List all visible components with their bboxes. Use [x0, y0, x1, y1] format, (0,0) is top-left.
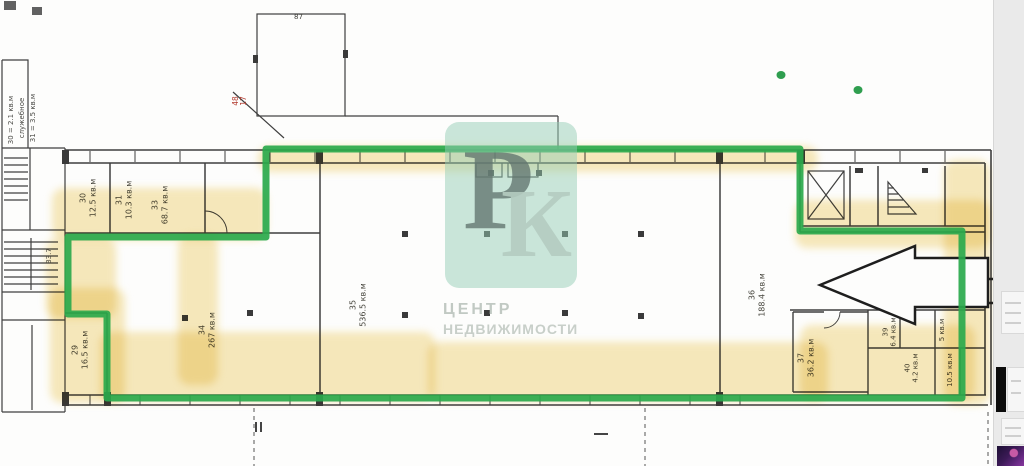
room-label-39: 396.4 кв.м [882, 317, 899, 346]
highlight-blob [944, 160, 990, 405]
room-label-small-1: 5 кв.м [938, 319, 946, 342]
highlight-blob [50, 288, 125, 403]
green-dot [854, 86, 863, 94]
room-label-29: 2916.5 кв.м [70, 331, 89, 369]
stairs-lines [4, 158, 58, 290]
sidebar-photo-thumbnail[interactable] [997, 446, 1024, 466]
room-label-30: 3012.5 кв.м [78, 179, 97, 217]
annex-note: 87 [294, 13, 303, 21]
highlight-blob [178, 235, 218, 385]
room-label-34: 34267 кв.м [197, 312, 216, 348]
highlight-blob [800, 325, 975, 400]
highlight-blob [100, 332, 435, 402]
sidebar-thumbnail-3[interactable] [1001, 418, 1024, 445]
margin-note-3: 31 = 3.5 кв.м [29, 94, 37, 142]
margin-note-2: служебное [18, 98, 26, 139]
highlight-blob [52, 188, 267, 240]
highlight-blob [46, 238, 116, 318]
highlight-blob [428, 342, 828, 402]
gallery-sidebar [993, 0, 1024, 466]
sidebar-black-bar [996, 367, 1006, 412]
room-label-35: 35536.5 кв.м [348, 283, 367, 327]
room-label-36: 36188.4 кв.м [747, 273, 766, 317]
floor-plan-screenshot: 2916.5 кв.м 3012.5 кв.м 3110.3 кв.м 3368… [0, 0, 1024, 466]
highlight-blob [795, 200, 990, 248]
watermark-letter-k: К [501, 168, 572, 280]
sidebar-thumbnail-1[interactable] [1001, 291, 1024, 334]
watermark-text-line2: НЕДВИЖИМОСТИ [443, 321, 578, 337]
room-label-33: 3368.7 кв.м [150, 186, 169, 224]
sidebar-thumbnail-2[interactable] [1007, 367, 1024, 412]
stair-area-note: 33.7 [45, 248, 53, 264]
room-label-small-2: 10.5 кв.м [946, 353, 954, 387]
room-label-40: 404.2 кв.м [904, 353, 921, 382]
left-arrow-shape [820, 246, 988, 324]
watermark-text-line1: ЦЕНТР [443, 301, 512, 319]
green-dot [777, 71, 786, 79]
margin-note-1: 30 = 2.1 кв.м [7, 96, 15, 144]
room-label-31: 3110.3 кв.м [114, 181, 133, 219]
red-annotation: 4817 [232, 96, 249, 106]
room-label-37: 3736.2 кв.м [796, 339, 815, 377]
